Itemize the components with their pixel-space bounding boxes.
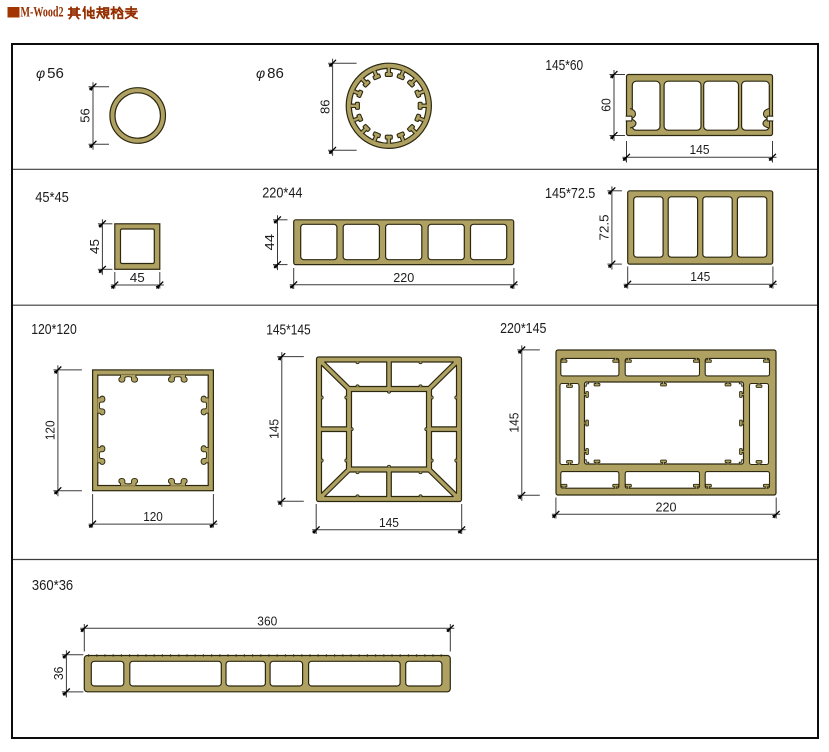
svg-text:145: 145 xyxy=(267,419,282,439)
svg-text:220: 220 xyxy=(656,499,677,514)
svg-text:44: 44 xyxy=(262,234,277,251)
svg-text:220*145: 220*145 xyxy=(500,320,546,337)
svg-text:86: 86 xyxy=(317,100,332,115)
svg-text:360*36: 360*36 xyxy=(32,577,73,594)
svg-text:120: 120 xyxy=(143,509,163,524)
svg-text:145*72.5: 145*72.5 xyxy=(545,185,595,202)
svg-text:145*145: 145*145 xyxy=(266,322,311,339)
svg-text:145: 145 xyxy=(690,269,710,284)
svg-text:145: 145 xyxy=(379,515,399,530)
svg-text:φ86: φ86 xyxy=(256,65,284,82)
svg-text:M-Wood2: M-Wood2 xyxy=(21,5,64,21)
svg-text:360: 360 xyxy=(257,613,277,628)
svg-text:36: 36 xyxy=(51,667,66,681)
svg-text:120: 120 xyxy=(43,421,58,441)
svg-text:220*44: 220*44 xyxy=(262,185,302,202)
svg-text:45: 45 xyxy=(130,270,145,285)
svg-text:120*120: 120*120 xyxy=(31,321,77,338)
svg-text:φ56: φ56 xyxy=(36,65,64,82)
svg-text:72.5: 72.5 xyxy=(597,214,612,240)
svg-text:45: 45 xyxy=(87,239,102,254)
svg-text:145: 145 xyxy=(507,413,522,433)
svg-text:145*60: 145*60 xyxy=(545,57,583,74)
svg-text:56: 56 xyxy=(78,108,93,123)
svg-text:220: 220 xyxy=(393,270,414,285)
svg-text:60: 60 xyxy=(599,98,614,112)
svg-text:45*45: 45*45 xyxy=(35,189,69,206)
svg-text:145: 145 xyxy=(690,142,710,157)
